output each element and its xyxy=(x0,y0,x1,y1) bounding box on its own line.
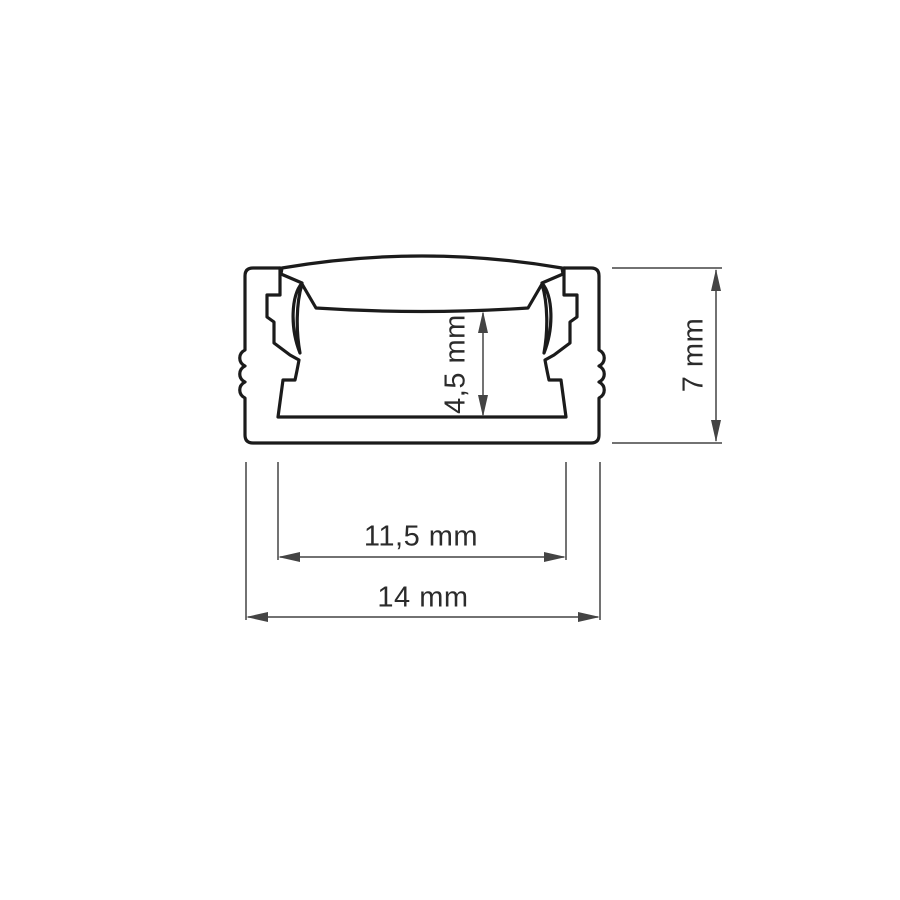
profile-inner-cavity xyxy=(267,268,577,417)
drawing-canvas: 4,5 mm 7 mm 11,5 mm 14 mm xyxy=(0,0,900,900)
dimensions-group xyxy=(246,268,722,622)
arrowhead-down-icon xyxy=(478,395,488,417)
arrowhead-up-icon xyxy=(478,311,488,333)
arrowhead-left-icon xyxy=(278,552,300,562)
dimension-inner-height xyxy=(478,311,488,417)
arrowhead-right-icon xyxy=(578,612,600,622)
outer-height-dimension-label: 7 mm xyxy=(678,318,711,393)
arrowhead-down-icon xyxy=(711,420,721,442)
inner-height-dimension-label: 4,5 mm xyxy=(440,314,473,414)
cover-profile xyxy=(281,256,563,353)
profile-technical-drawing xyxy=(0,0,900,900)
arrowhead-left-icon xyxy=(246,612,268,622)
outer-width-dimension-label: 14 mm xyxy=(377,582,468,615)
arrowhead-right-icon xyxy=(544,552,566,562)
arrowhead-up-icon xyxy=(711,269,721,291)
profile-body-group xyxy=(240,256,605,443)
inner-width-dimension-label: 11,5 mm xyxy=(364,521,478,554)
